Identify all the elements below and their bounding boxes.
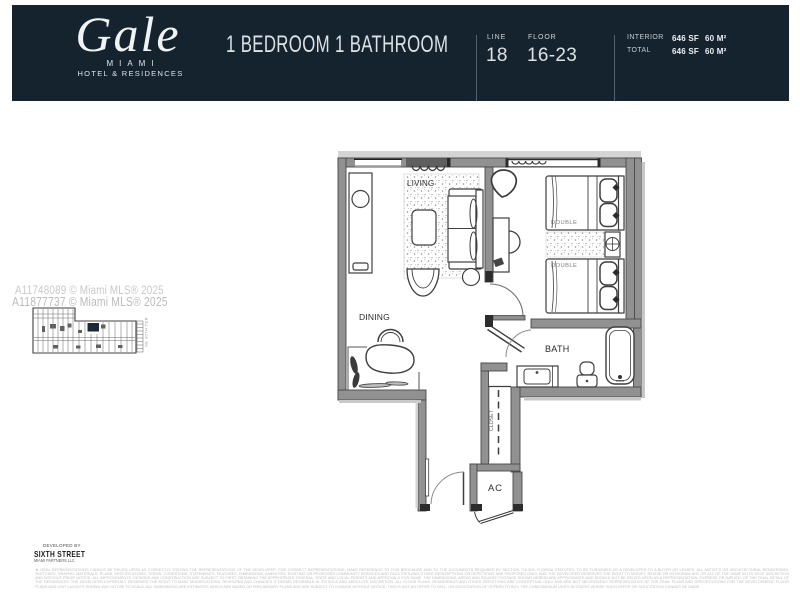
svg-text:NE 30TH TER: NE 30TH TER (144, 317, 149, 347)
svg-text:DOUBLE: DOUBLE (551, 263, 577, 269)
svg-text:AC: AC (488, 483, 503, 494)
svg-text:DINING: DINING (359, 312, 390, 322)
svg-text:CLOSET: CLOSET (489, 409, 495, 431)
svg-text:LIVING: LIVING (407, 179, 434, 188)
svg-text:BATH: BATH (545, 344, 570, 354)
svg-text:DOUBLE: DOUBLE (551, 220, 577, 226)
